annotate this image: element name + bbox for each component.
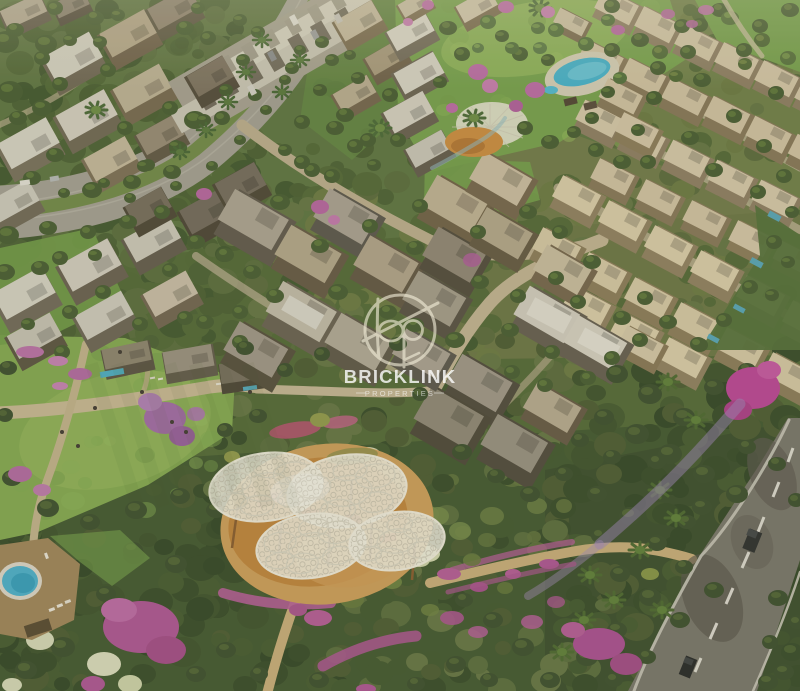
svg-text:BRICKLINK: BRICKLINK [344, 366, 457, 387]
svg-text:PROPERTIES: PROPERTIES [365, 389, 435, 398]
